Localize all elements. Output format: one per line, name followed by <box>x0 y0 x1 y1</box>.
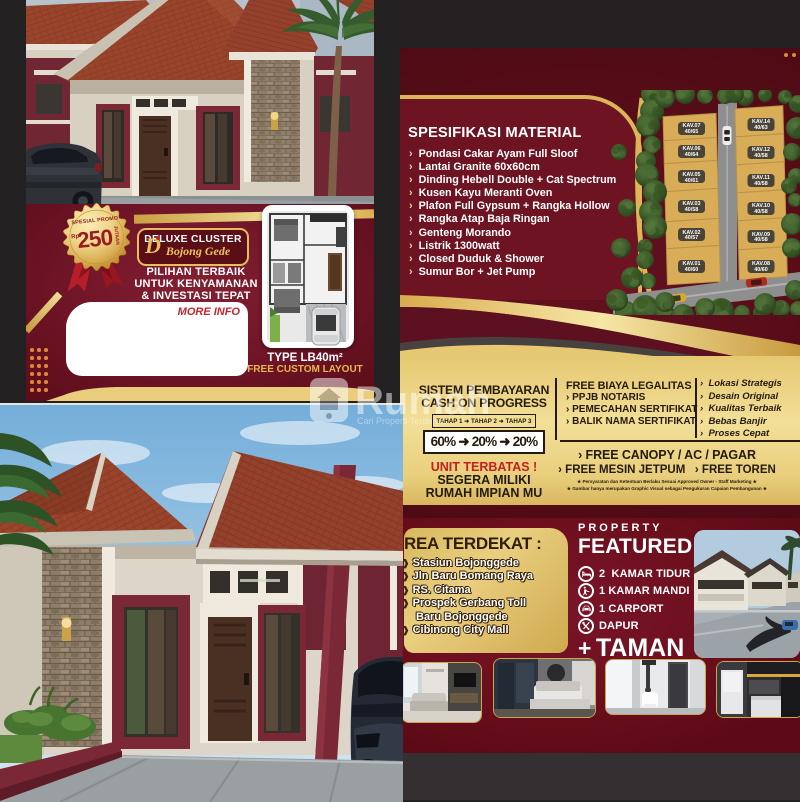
svg-text:40/58: 40/58 <box>754 153 768 159</box>
svg-text:40/61: 40/61 <box>685 178 699 184</box>
svg-text:250: 250 <box>76 225 114 254</box>
svg-text:40/63: 40/63 <box>754 125 768 131</box>
svg-text:40/60: 40/60 <box>685 267 699 273</box>
svg-text:40/58: 40/58 <box>685 207 699 213</box>
svg-text:40/60: 40/60 <box>754 267 768 273</box>
svg-text:Cari Properti Terdekat: Cari Properti Terdekat <box>357 416 445 426</box>
svg-text:40/57: 40/57 <box>685 235 699 241</box>
svg-text:40/65: 40/65 <box>685 129 699 135</box>
svg-text:40/64: 40/64 <box>685 152 699 158</box>
svg-text:40/58: 40/58 <box>754 181 768 187</box>
svg-text:40/58: 40/58 <box>754 209 768 215</box>
svg-text:40/58: 40/58 <box>754 237 768 243</box>
